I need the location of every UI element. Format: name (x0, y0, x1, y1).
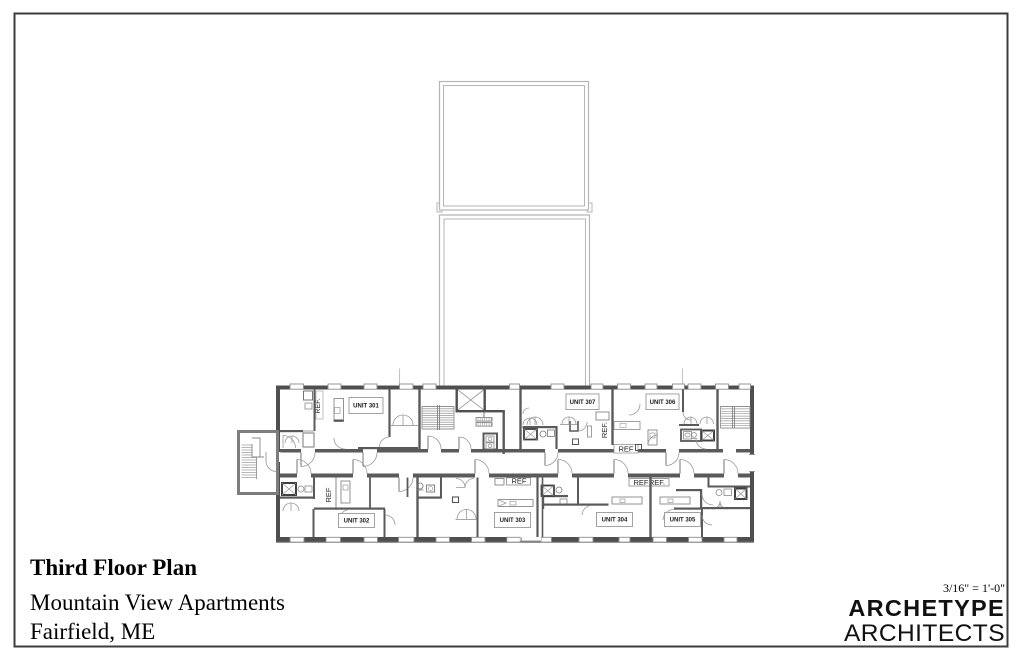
svg-text:UNIT 302: UNIT 302 (344, 519, 370, 525)
svg-text:REF: REF (324, 487, 333, 502)
svg-text:UNIT 304: UNIT 304 (602, 518, 628, 524)
svg-text:UNIT 303: UNIT 303 (500, 518, 526, 524)
svg-text:Mountain View Apartments: Mountain View Apartments (30, 590, 285, 615)
svg-text:REF.: REF. (600, 422, 609, 438)
svg-text:REF: REF (619, 445, 634, 454)
svg-text:ARCHITECTS: ARCHITECTS (844, 620, 1005, 647)
svg-text:UNIT 305: UNIT 305 (670, 518, 696, 524)
svg-text:3/16" = 1'-0": 3/16" = 1'-0" (943, 581, 1005, 595)
svg-text:UNIT 307: UNIT 307 (570, 400, 596, 406)
svg-text:Third Floor Plan: Third Floor Plan (30, 555, 197, 580)
svg-text:UNIT 301: UNIT 301 (353, 404, 379, 410)
svg-text:ARCHETYPE: ARCHETYPE (848, 595, 1005, 621)
svg-text:UNIT 306: UNIT 306 (650, 400, 676, 406)
svg-text:Fairfield, ME: Fairfield, ME (30, 619, 155, 644)
